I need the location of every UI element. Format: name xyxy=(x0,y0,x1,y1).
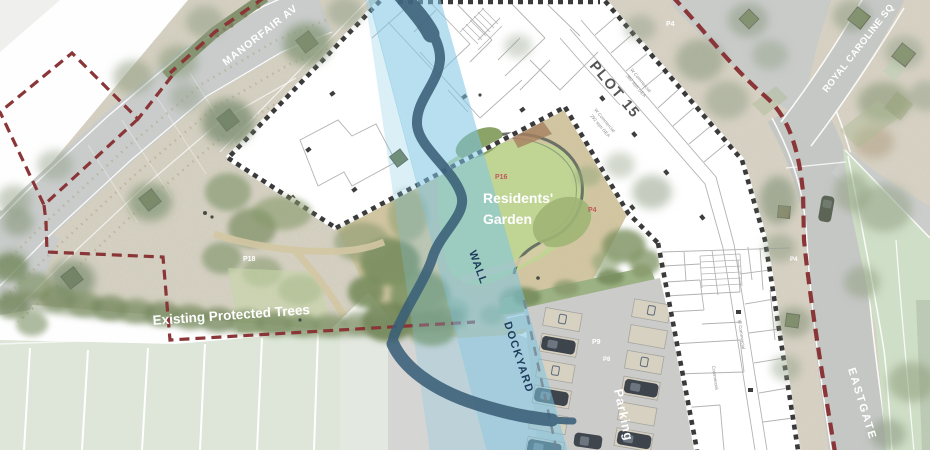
svg-text:P4: P4 xyxy=(790,257,798,263)
svg-text:P18: P18 xyxy=(243,256,256,263)
svg-text:P4: P4 xyxy=(588,207,597,214)
svg-text:Residents': Residents' xyxy=(483,190,553,206)
svg-text:Garden: Garden xyxy=(483,211,532,227)
svg-text:P4: P4 xyxy=(666,21,675,28)
svg-text:P9: P9 xyxy=(592,339,601,346)
svg-text:P2: P2 xyxy=(460,19,469,26)
svg-text:P8: P8 xyxy=(603,357,611,363)
svg-text:P16: P16 xyxy=(495,174,508,181)
